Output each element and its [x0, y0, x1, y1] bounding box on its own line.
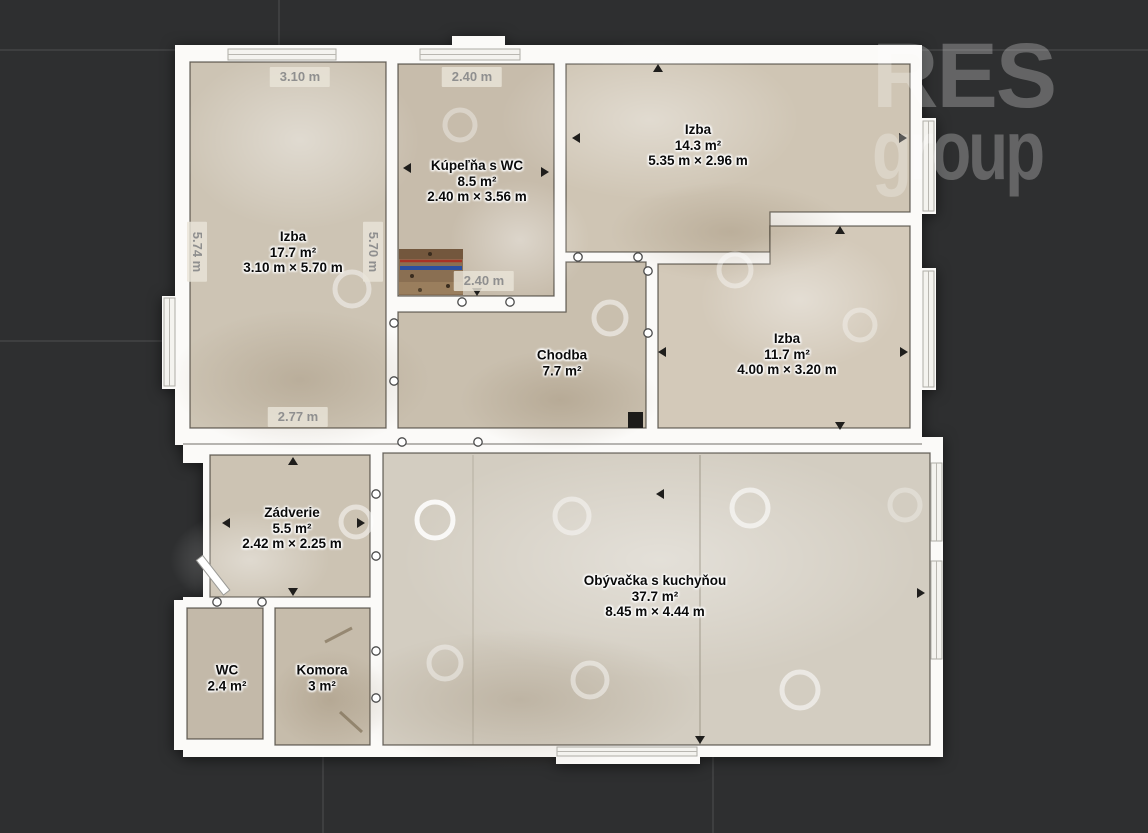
room-label-zadverie: Zádverie 5.5 m² 2.42 m × 2.25 m — [242, 505, 341, 552]
room-name: Zádverie — [242, 505, 341, 521]
room-area: 11.7 m² — [737, 346, 836, 362]
room-name: Izba — [243, 229, 342, 245]
hallway-cabinet — [628, 412, 643, 428]
room-name: Komora — [296, 663, 347, 679]
room-label-obyvacka: Obývačka s kuchyňou 37.7 m² 8.45 m × 4.4… — [584, 573, 727, 620]
dim-label: 2.40 m — [454, 271, 514, 291]
room-dims: 8.45 m × 4.44 m — [584, 604, 727, 620]
room-dims: 2.42 m × 2.25 m — [242, 536, 341, 552]
room-label-izba-3: Izba 11.7 m² 4.00 m × 3.20 m — [737, 331, 836, 378]
room-name: Izba — [648, 122, 747, 138]
room-label-izba-2: Izba 14.3 m² 5.35 m × 2.96 m — [648, 122, 747, 169]
room-name: WC — [207, 663, 246, 679]
room-name: Obývačka s kuchyňou — [584, 573, 727, 589]
room-dims: 3.10 m × 5.70 m — [243, 260, 342, 276]
floorplan — [0, 0, 1148, 833]
room-area: 5.5 m² — [242, 520, 341, 536]
room-dims: 2.40 m × 3.56 m — [427, 189, 526, 205]
room-name: Chodba — [537, 348, 587, 364]
dim-label: 5.74 m — [187, 222, 207, 282]
room-area: 17.7 m² — [243, 244, 342, 260]
dim-label: 2.77 m — [268, 407, 328, 427]
room-area: 3 m² — [296, 678, 347, 694]
room-dims: 5.35 m × 2.96 m — [648, 153, 747, 169]
room-area: 14.3 m² — [648, 137, 747, 153]
room-label-izba-1: Izba 17.7 m² 3.10 m × 5.70 m — [243, 229, 342, 276]
room-area: 8.5 m² — [427, 173, 526, 189]
room-label-chodba: Chodba 7.7 m² — [537, 348, 587, 379]
room-area: 7.7 m² — [537, 363, 587, 379]
room-label-kupelna: Kúpeľňa s WC 8.5 m² 2.40 m × 3.56 m — [427, 158, 526, 205]
dim-label: 5.70 m — [363, 222, 383, 282]
room-name: Kúpeľňa s WC — [427, 158, 526, 174]
room-area: 2.4 m² — [207, 678, 246, 694]
room-name: Izba — [737, 331, 836, 347]
dim-label: 3.10 m — [270, 67, 330, 87]
room-label-wc: WC 2.4 m² — [207, 663, 246, 694]
room-area: 37.7 m² — [584, 588, 727, 604]
dim-label: 2.40 m — [442, 67, 502, 87]
room-label-komora: Komora 3 m² — [296, 663, 347, 694]
room-dims: 4.00 m × 3.20 m — [737, 362, 836, 378]
